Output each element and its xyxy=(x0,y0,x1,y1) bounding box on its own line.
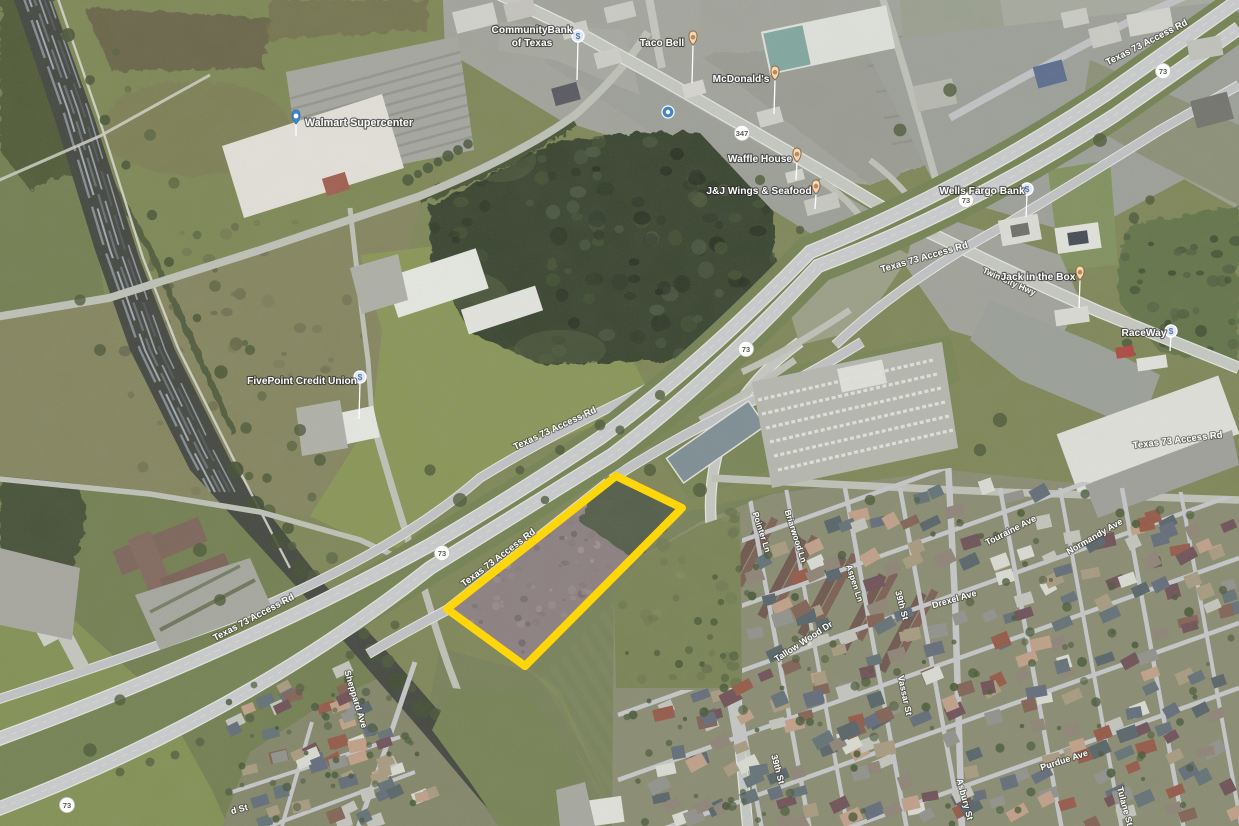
svg-text:Taco Bell: Taco Bell xyxy=(640,38,685,49)
svg-text:RaceWay: RaceWay xyxy=(1122,328,1167,339)
svg-text:73: 73 xyxy=(1159,67,1167,76)
svg-text:$: $ xyxy=(358,372,363,382)
svg-text:FivePoint Credit Union: FivePoint Credit Union xyxy=(247,376,357,387)
svg-text:McDonald's: McDonald's xyxy=(713,74,770,85)
svg-text:of Texas: of Texas xyxy=(512,38,553,49)
svg-text:Wells Fargo Bank: Wells Fargo Bank xyxy=(939,186,1025,197)
svg-text:$: $ xyxy=(576,31,581,41)
svg-text:J&J Wings & Seafood: J&J Wings & Seafood xyxy=(706,186,811,197)
svg-text:$: $ xyxy=(1025,184,1030,194)
svg-text:CommunityBank: CommunityBank xyxy=(492,25,573,36)
svg-text:73: 73 xyxy=(962,196,970,205)
svg-text:73: 73 xyxy=(438,549,446,558)
svg-text:Jack in the Box: Jack in the Box xyxy=(1001,272,1076,283)
svg-text:Walmart Supercenter: Walmart Supercenter xyxy=(305,117,414,129)
svg-text:$: $ xyxy=(1169,326,1174,336)
svg-text:73: 73 xyxy=(63,801,71,810)
svg-text:347: 347 xyxy=(736,129,749,138)
svg-text:73: 73 xyxy=(742,345,750,354)
svg-text:Waffle House: Waffle House xyxy=(728,154,792,165)
